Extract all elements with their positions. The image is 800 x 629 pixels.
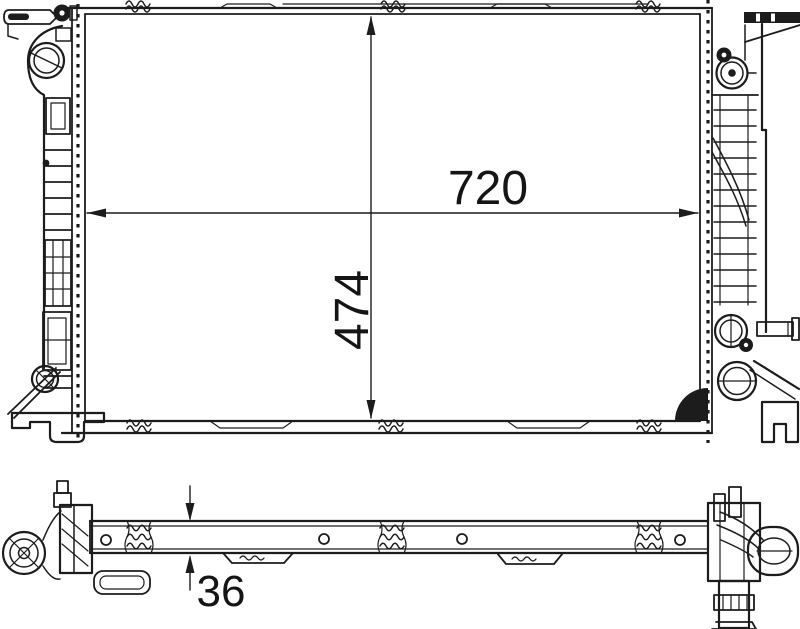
- arrow-right-icon: [679, 209, 698, 218]
- bottom-left-connector: [3, 481, 150, 594]
- left-mount-pad: [94, 571, 150, 594]
- arrow-up-icon: [367, 16, 376, 35]
- dimension-width: 720: [87, 162, 698, 218]
- bottom-view: [3, 481, 798, 629]
- corner-fill-shape: [675, 388, 708, 421]
- arrow-left-icon: [87, 209, 106, 218]
- front-view: [4, 0, 800, 443]
- right-tank-ribs: [712, 95, 756, 305]
- drawing-canvas: 720 474 36: [0, 0, 800, 629]
- arrow-up-icon: [186, 555, 195, 573]
- arrow-down-icon: [186, 503, 195, 521]
- mount-hole: [101, 535, 111, 545]
- left-mounting-foot: [12, 413, 104, 442]
- dimension-height: 474: [326, 16, 379, 419]
- dimension-height-label: 474: [326, 270, 379, 350]
- break-marks-top: [126, 1, 660, 12]
- mount-hole: [675, 535, 685, 545]
- bottom-bar: [90, 521, 708, 564]
- top-right-bracket: [744, 12, 800, 60]
- dimension-depth-label: 36: [197, 567, 246, 616]
- dimension-depth: 36: [186, 486, 246, 616]
- dimension-width-label: 720: [448, 162, 528, 215]
- arrow-down-icon: [367, 400, 376, 419]
- core-outline: [62, 0, 712, 443]
- left-tank: [4, 5, 104, 443]
- right-mounting-foot: [762, 402, 798, 442]
- left-tank-ribs: [43, 98, 71, 388]
- right-tank: [712, 8, 800, 442]
- bottom-right-connector: [708, 487, 798, 629]
- underside-clips: [223, 553, 563, 564]
- mount-hole: [319, 534, 329, 544]
- mount-hole: [457, 534, 467, 544]
- right-pipe-stub: [757, 318, 799, 340]
- radiator-technical-drawing: 720 474 36: [0, 0, 800, 629]
